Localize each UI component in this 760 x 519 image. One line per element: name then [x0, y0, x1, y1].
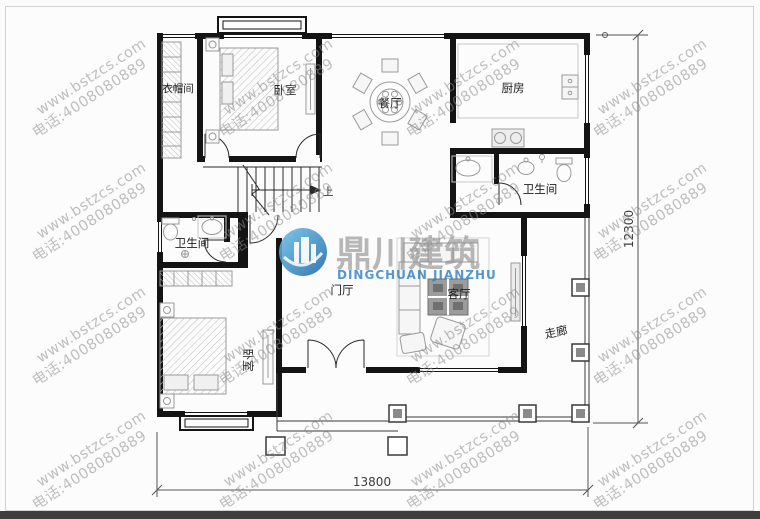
entrance-door-right: [336, 340, 364, 368]
room-label-kitchen: 厨房: [502, 81, 525, 95]
floor-plan-drawing: 13800 12300 衣帽间 卧室 餐厅 厨房 卫生间 卫生间 门厅 客厅 卧…: [0, 0, 760, 519]
room-label-bedroom-bottom: 卧室: [241, 349, 255, 372]
stairs-up-label: 上: [323, 186, 334, 198]
wash-basin: [452, 156, 492, 182]
bed-bottom: [160, 271, 273, 408]
bath-right-door: [499, 183, 521, 205]
bottom-dark-bar: [0, 511, 760, 519]
room-label-living: 客厅: [448, 287, 471, 301]
bed-top: [206, 38, 315, 143]
logo-en-text: DINGCHUAN JIANZHU: [337, 268, 497, 282]
floor-plan-screenshot: 13800 12300 衣帽间 卧室 餐厅 厨房 卫生间 卫生间 门厅 客厅 卧…: [0, 0, 760, 519]
room-label-foyer: 门厅: [331, 283, 354, 297]
dimension-height: 12300: [622, 210, 636, 248]
stairs: [203, 165, 322, 215]
room-label-corridor: 走廊: [543, 323, 568, 341]
room-label-bedroom-top: 卧室: [274, 83, 297, 97]
dimension-width: 13800: [353, 475, 391, 489]
room-label-dining: 餐厅: [379, 96, 402, 110]
entrance-door-left: [308, 340, 336, 368]
hall-foyer-door: [250, 215, 278, 243]
kitchen-fixtures: [458, 44, 578, 147]
bath-right-fixtures: [518, 155, 572, 182]
room-label-bath-right: 卫生间: [523, 182, 558, 196]
brand-logo: 鼎川建筑 DINGCHUAN JIANZHU: [279, 228, 497, 282]
room-label-cloakroom: 衣帽间: [162, 82, 194, 95]
cloakroom-wardrobe: [162, 42, 181, 158]
room-label-bath-left: 卫生间: [175, 236, 210, 250]
